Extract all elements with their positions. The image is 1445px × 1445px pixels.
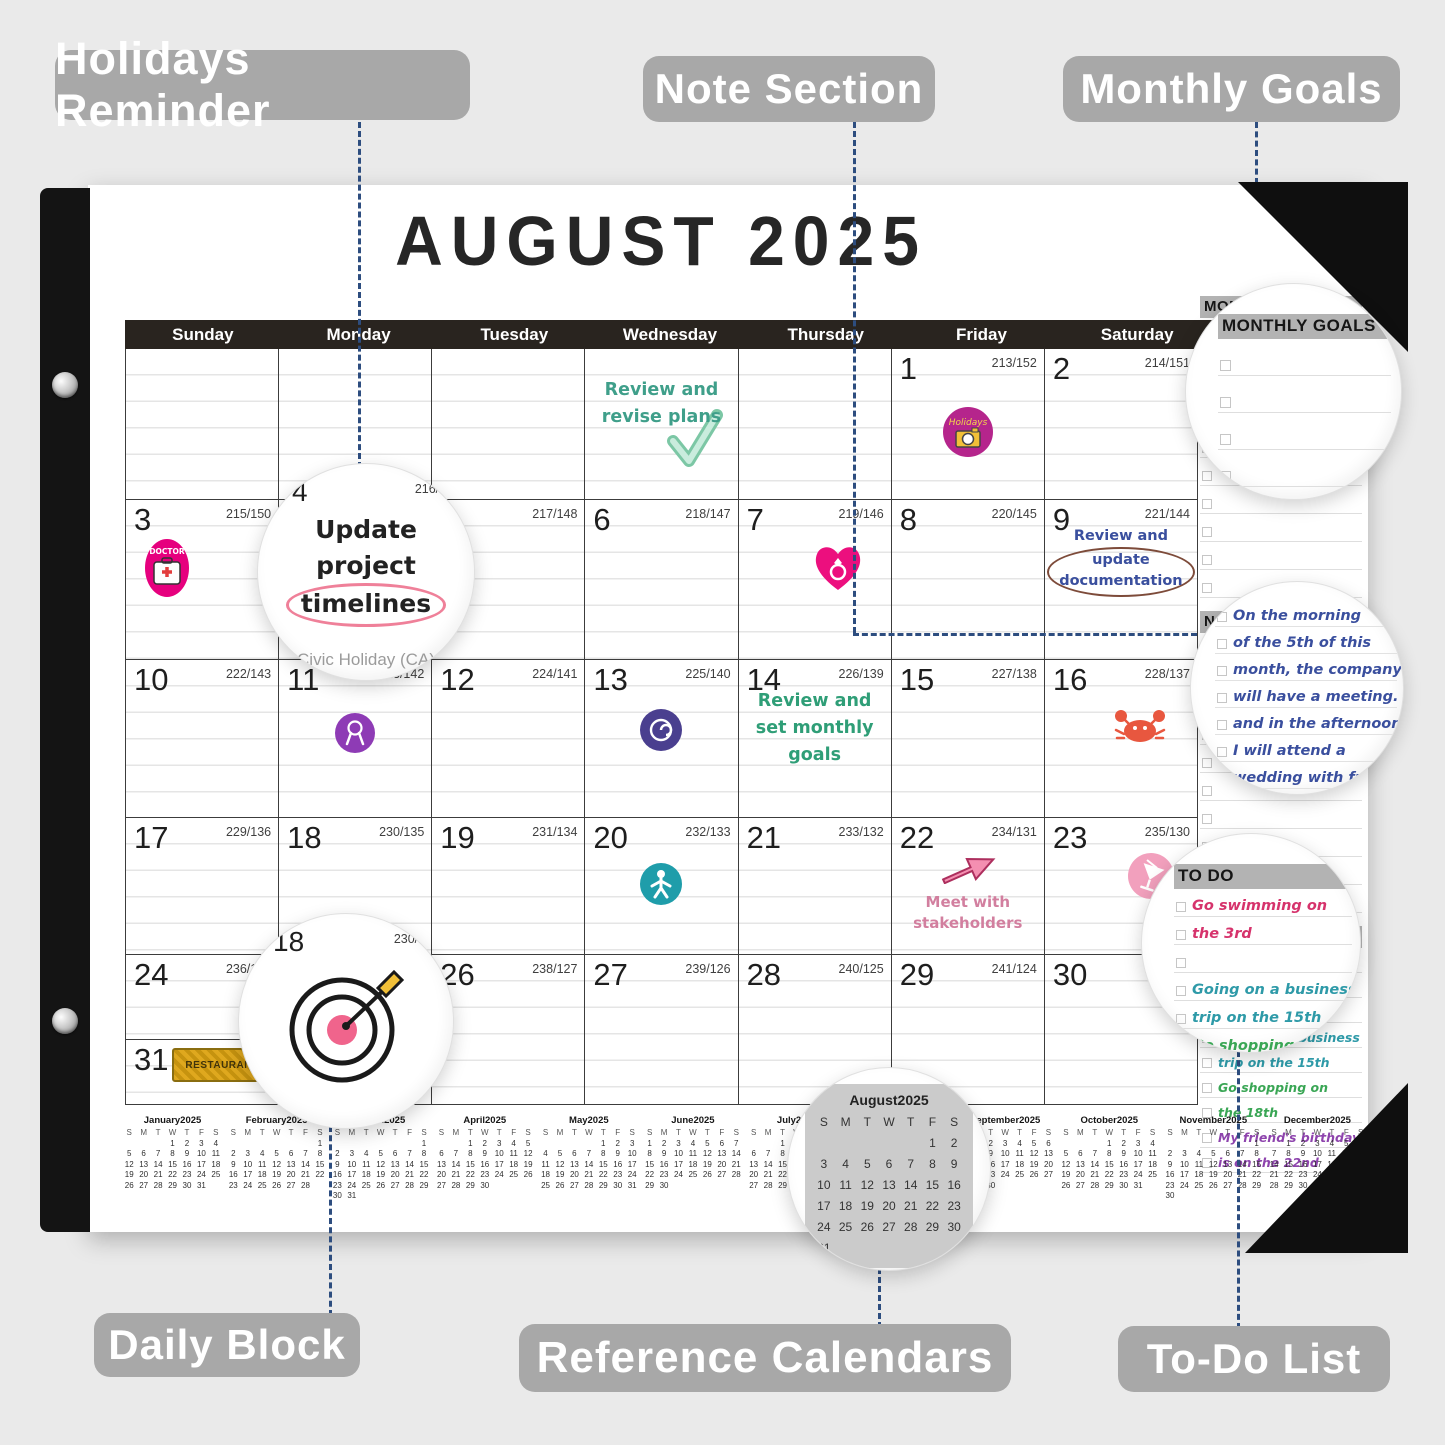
mini-day: 28 [151,1181,165,1192]
mini-day: 8 [1249,1149,1263,1160]
mini-day: 28 [729,1170,743,1181]
day-cell: 12224/141 [432,660,585,818]
todo-item-magnified-text: Go shopping on [1192,1038,1320,1053]
todo-item-magnified-text: trip on the 15th [1192,1010,1321,1028]
mini-dow-label: S [642,1128,656,1139]
mini-day: 7 [1088,1149,1102,1160]
mini-day: 26 [373,1181,387,1192]
mini-day: 19 [1059,1170,1073,1181]
mini-blank [538,1139,552,1150]
mini-dow-label: T [700,1128,714,1139]
mini-month-january2025: January2025SMTWTFS1234567891011121314151… [122,1115,223,1202]
mini-day: 26 [700,1170,714,1181]
mini-day: 10 [625,1149,639,1160]
mini-day: 27 [136,1181,150,1192]
mini-month-title: May2025 [538,1115,639,1126]
mini-day: 19 [269,1170,283,1181]
mini-day: 12 [856,1175,878,1196]
mini-dow-label: T [388,1128,402,1139]
mini-day: 6 [1073,1149,1087,1160]
reference-calendar-magnifier: August2025 SMTWTFS1234567891011121314151… [787,1067,991,1271]
mini-day: 29 [1281,1181,1295,1192]
mini-day: 14 [729,1149,743,1160]
mini-day: 24 [194,1170,208,1181]
mini-day: 20 [1073,1170,1087,1181]
day-number: 31 [134,1042,168,1078]
mini-day: 8 [1102,1149,1116,1160]
mini-day: 4 [1012,1139,1026,1150]
mini-day: 3 [1177,1149,1191,1160]
mini-day: 23 [478,1170,492,1181]
checkbox-icon [1217,639,1227,649]
mini-month-title: April2025 [434,1115,535,1126]
mini-day: 3 [1310,1139,1324,1150]
mini-day: 18 [359,1170,373,1181]
mini-day: 30 [180,1181,194,1192]
mini-dow-label: T [151,1128,165,1139]
mini-dow-label: S [1145,1128,1159,1139]
mini-day: 27 [715,1170,729,1181]
mini-day: 11 [835,1175,857,1196]
day-counter: 227/138 [992,667,1037,681]
mini-blank [359,1139,373,1150]
mini-day: 14 [582,1160,596,1171]
goal-magnified-row [1218,450,1391,487]
day-counter: 238/127 [532,962,577,976]
day-counter: 233/132 [839,825,884,839]
day-number: 1 [900,351,917,387]
day-number: 23 [1053,820,1087,856]
teal-runner-sticker [639,862,683,906]
mini-dow-label: S [625,1128,639,1139]
checkbox-icon [1202,1058,1212,1068]
day-number: 27 [593,957,627,993]
mini-day: 13 [1073,1160,1087,1171]
day-counter: 234/131 [992,825,1037,839]
mini-day: 2 [943,1133,965,1154]
mini-dow-label: S [538,1128,552,1139]
mini-day: 9 [478,1149,492,1160]
mini-day: 23 [657,1170,671,1181]
mini-day: 6 [878,1154,900,1175]
mini-day: 12 [521,1149,535,1160]
todo-item-row: Go shopping on [1200,1073,1362,1098]
todo-item-text: trip on the 15th [1218,1055,1330,1072]
mini-day: 20 [746,1170,760,1181]
note-line-row: month, the company [1215,654,1397,681]
mini-day: 28 [1088,1181,1102,1192]
mini-day: 22 [642,1170,656,1181]
mini-day: 2 [1116,1139,1130,1150]
mini-day: 13 [136,1160,150,1171]
mini-dow-label: T [255,1128,269,1139]
month-title: AUGUST 2025 [125,201,1197,281]
note-line-text: will have a meeting. [1233,689,1399,707]
weekday-header-sunday: Sunday [125,320,281,349]
day-number: 30 [1053,957,1087,993]
mini-blank [1192,1139,1206,1150]
mini-day: 16 [226,1170,240,1181]
day-counter: 218/147 [685,507,730,521]
day-counter: 235/130 [1145,825,1190,839]
holidays-reminder-magnifier: 4 216/149 Updateprojecttimelines Civic H… [257,463,475,681]
mini-dow-label: M [345,1128,359,1139]
mini-day: 21 [729,1160,743,1171]
connector-note-line-vertical [853,122,856,633]
day-number: 3 [134,502,151,538]
day-number: 6 [593,502,610,538]
mini-day: 4 [686,1139,700,1150]
mini-day: 11 [1145,1149,1159,1160]
mini-day: 2 [226,1149,240,1160]
monthly-goals-header-magnified: MONTHLY GOALS [1218,314,1387,339]
mini-day: 28 [761,1181,775,1192]
mini-day: 6 [388,1149,402,1160]
mini-blank [373,1139,387,1150]
note-line-row: and in the afternoon [1215,708,1397,735]
holiday-name-label: Civic Holiday (CA) [258,650,474,670]
mini-blank [553,1139,567,1150]
todo-item-magnified-row: the 3rd [1174,917,1352,945]
mini-day: 7 [402,1149,416,1160]
mini-day: 2 [1296,1139,1310,1150]
mini-day: 18 [209,1160,223,1171]
purple-ribbon-sticker [334,712,376,754]
todo-item-magnified-row: Going on a business [1174,973,1352,1001]
handwritten-note: Review and revise plans [587,377,735,431]
mini-dow-label: F [1027,1128,1041,1139]
mini-day: 25 [1192,1181,1206,1192]
day-cell: 22234/131Meet with stakeholders [892,818,1045,955]
weekday-header-friday: Friday [904,320,1060,349]
mini-day: 1 [1281,1139,1295,1150]
mini-dow-label: M [1073,1128,1087,1139]
mini-day: 15 [1249,1160,1263,1171]
mini-day: 16 [943,1175,965,1196]
mini-day: 27 [746,1181,760,1192]
mini-day: 22 [1102,1170,1116,1181]
mini-dow-label: S [1163,1128,1177,1139]
mini-day: 21 [151,1170,165,1181]
mini-dow-label: S [1059,1128,1073,1139]
day-cell: 3215/150DOCTOR [126,500,279,660]
day-number: 17 [134,820,168,856]
mini-dow-label: W [1206,1128,1220,1139]
mini-day: 11 [538,1160,552,1171]
mini-day: 18 [1145,1160,1159,1171]
mini-day: 23 [1163,1181,1177,1192]
mini-day: 8 [313,1149,327,1160]
mini-day: 24 [241,1181,255,1192]
mini-day: 18 [506,1160,520,1171]
mini-day: 28 [1267,1181,1281,1192]
mini-day: 26 [1027,1170,1041,1181]
day-cell: 26238/127 [432,955,585,1105]
mini-day: 6 [284,1149,298,1160]
checkbox-icon [1202,555,1212,565]
mini-day: 20 [434,1170,448,1181]
mini-day: 3 [625,1139,639,1150]
mini-day: 11 [209,1149,223,1160]
binder-rivet-bottom [52,1008,78,1034]
mini-dow-label: T [492,1128,506,1139]
mini-day: 6 [1041,1139,1055,1150]
mini-day: 21 [298,1170,312,1181]
mini-day: 13 [388,1160,402,1171]
dartboard-doodle [239,964,453,1088]
mini-dow-label: T [900,1112,922,1133]
mini-month-title: October2025 [1059,1115,1160,1126]
mini-day: 27 [434,1181,448,1192]
mini-blank [1163,1139,1177,1150]
mini-day: 18 [255,1170,269,1181]
mini-day: 7 [449,1149,463,1160]
mini-day: 4 [1325,1139,1339,1150]
checkbox-icon [1202,583,1212,593]
mini-day: 1 [463,1139,477,1150]
notes-magnifier: On the morningof the 5th of thismonth, t… [1190,581,1404,795]
connector-daily-block-line [329,1126,332,1316]
note-line-row: On the morning [1215,600,1397,627]
mini-day: 30 [611,1181,625,1192]
mini-blank [1088,1139,1102,1150]
mini-dow-label: W [1102,1128,1116,1139]
mini-day: 13 [567,1160,581,1171]
mini-day: 29 [922,1217,944,1238]
handwritten-note: Meet with stakeholders [894,892,1042,934]
mini-day: 19 [122,1170,136,1181]
day-counter: 225/140 [685,667,730,681]
mini-day: 12 [700,1149,714,1160]
mini-day: 15 [596,1160,610,1171]
mini-day: 2 [330,1149,344,1160]
todo-item-magnified-text: the 3rd [1192,926,1252,944]
note-line-text: and in the afternoon [1233,716,1402,734]
mini-day: 19 [1206,1170,1220,1181]
mini-day: 4 [255,1149,269,1160]
mini-day: 24 [1131,1170,1145,1181]
mini-day: 12 [1206,1160,1220,1171]
mini-day: 16 [611,1160,625,1171]
checkbox-icon [1217,612,1227,622]
day-cell: 6218/147 [585,500,738,660]
day-counter: 229/136 [226,825,271,839]
mini-day: 13 [878,1175,900,1196]
mini-day: 21 [761,1170,775,1181]
mini-day: 5 [553,1149,567,1160]
mini-dow-label: W [1310,1128,1324,1139]
mini-dow-label: T [567,1128,581,1139]
mini-day: 3 [194,1139,208,1150]
mini-day: 1 [1102,1139,1116,1150]
mini-day: 1 [313,1139,327,1150]
mini-dow-label: W [269,1128,283,1139]
mini-day: 19 [856,1196,878,1217]
todo-item-magnified-row: Go shopping on [1174,1029,1352,1053]
mini-day: 19 [700,1160,714,1171]
checkbox-icon [1202,499,1212,509]
august-mini-title: August2025 [805,1092,973,1108]
day-cell: 7219/146 [739,500,892,660]
magnified-day-counter: 216/149 [415,482,460,496]
magnified-day-number: 18 [273,926,304,958]
mini-day: 18 [538,1170,552,1181]
weekday-header-tuesday: Tuesday [436,320,592,349]
day-cell: Review and revise plans [585,349,738,500]
mini-day: 11 [506,1149,520,1160]
mini-dow-label: M [449,1128,463,1139]
mini-day: 5 [1027,1139,1041,1150]
mini-month-title: January2025 [122,1115,223,1126]
goal-magnified-row [1218,339,1391,376]
svg-text:Holidays: Holidays [949,418,988,428]
mini-month-grid: SMTWTFS123456789101112131415161718192021… [1163,1128,1264,1202]
mini-day: 8 [165,1149,179,1160]
mini-dow-label: M [835,1112,857,1133]
mini-day: 22 [1281,1170,1295,1181]
mini-day: 10 [345,1160,359,1171]
reference-calendars-strip: January2025SMTWTFS1234567891011121314151… [122,1115,1368,1202]
checkbox-icon [1220,471,1231,482]
mini-day: 16 [180,1160,194,1171]
pink-arrow-sticker [935,844,1001,884]
mini-month-grid: SMTWTFS123456789101112131415161718192021… [1059,1128,1160,1191]
day-counter: 219/146 [839,507,884,521]
mini-day: 23 [1296,1170,1310,1181]
goal-row [1200,542,1362,570]
mini-day: 7 [900,1154,922,1175]
mini-blank [136,1139,150,1150]
mini-blank [284,1139,298,1150]
mini-month-title: December2025 [1267,1115,1368,1126]
day-number: 13 [593,662,627,698]
checkbox-icon [1202,814,1212,824]
mini-day: 6 [715,1139,729,1150]
mini-day: 20 [1221,1170,1235,1181]
mini-day: 17 [671,1160,685,1171]
connector-monthly-goals-line [1255,122,1258,184]
mini-dow-label: F [1339,1128,1353,1139]
mini-day: 1 [417,1139,431,1150]
checkbox-icon [1176,930,1186,940]
mini-day: 29 [417,1181,431,1192]
mini-day: 17 [492,1160,506,1171]
mini-day: 24 [625,1170,639,1181]
mini-day: 14 [151,1160,165,1171]
mini-dow-label: T [1088,1128,1102,1139]
mini-dow-label: W [686,1128,700,1139]
mini-day: 28 [582,1181,596,1192]
mini-month-grid: SMTWTFS123456789101112131415161718192021… [330,1128,431,1202]
mini-dow-label: S [434,1128,448,1139]
mini-day: 16 [1296,1160,1310,1171]
mini-dow-label: T [856,1112,878,1133]
day-counter: 217/148 [532,507,577,521]
mini-dow-label: S [226,1128,240,1139]
mini-dow-label: M [1177,1128,1191,1139]
mini-day: 15 [417,1160,431,1171]
binder-rivet-top [52,372,78,398]
day-cell: 16228/137 [1045,660,1198,818]
mini-day: 12 [1027,1149,1041,1160]
mini-day: 27 [1221,1181,1235,1192]
mini-day: 9 [943,1154,965,1175]
checkbox-icon [1176,1014,1186,1024]
todo-item-magnified-text: Going on a business [1192,982,1356,1000]
mini-day: 4 [835,1154,857,1175]
mini-day: 8 [642,1149,656,1160]
todo-item-text: Go shopping on [1218,1080,1328,1097]
day-counter: 226/139 [839,667,884,681]
day-cell: 21233/132 [739,818,892,955]
note-line-row: of the 5th of this [1215,627,1397,654]
mini-day: 16 [1163,1170,1177,1181]
magnified-day-number: 4 [292,476,308,508]
mini-day: 26 [1059,1181,1073,1192]
mini-blank [1221,1139,1235,1150]
mini-month-grid: SMTWTFS123456789101112131415161718192021… [538,1128,639,1191]
mini-day: 19 [521,1160,535,1171]
mini-day: 11 [359,1160,373,1171]
mini-day: 29 [642,1181,656,1192]
mini-day: 1 [642,1139,656,1150]
mini-day: 30 [478,1181,492,1192]
checkbox-icon [1220,360,1231,371]
mini-day: 21 [1267,1170,1281,1181]
checkbox-icon [1176,1042,1186,1052]
mini-day: 26 [1206,1181,1220,1192]
mini-day: 13 [715,1149,729,1160]
day-cell: 15227/138 [892,660,1045,818]
day-number: 24 [134,957,168,993]
mini-dow-label: S [1267,1128,1281,1139]
goal-row [1200,514,1362,542]
mini-day: 17 [813,1196,835,1217]
mini-day: 15 [922,1175,944,1196]
mini-day: 12 [1059,1160,1073,1171]
weekday-header-saturday: Saturday [1059,320,1215,349]
mini-day: 4 [506,1139,520,1150]
mini-dow-label: T [359,1128,373,1139]
mini-day: 12 [373,1160,387,1171]
checkbox-icon [1217,693,1227,703]
mini-dow-label: W [165,1128,179,1139]
day-counter: 224/141 [532,667,577,681]
mini-day: 26 [553,1181,567,1192]
callout-daily-block: Daily Block [94,1313,360,1377]
mini-dow-label: F [506,1128,520,1139]
mini-day: 25 [1145,1170,1159,1181]
mini-blank [449,1139,463,1150]
mini-day: 2 [611,1139,625,1150]
mini-day: 4 [209,1139,223,1150]
mini-day: 30 [657,1181,671,1192]
doctor-sticker: DOCTOR [144,538,190,598]
mini-dow-label: T [596,1128,610,1139]
mini-day: 25 [538,1181,552,1192]
mini-day: 16 [478,1160,492,1171]
mini-dow-label: S [313,1128,327,1139]
day-cell: 20232/133 [585,818,738,955]
mini-day: 27 [1041,1170,1055,1181]
mini-day: 2 [478,1139,492,1150]
mini-day: 24 [492,1170,506,1181]
mini-day: 30 [330,1191,344,1202]
mini-day: 25 [686,1170,700,1181]
mini-day: 17 [1310,1160,1324,1171]
checkbox-icon [1217,747,1227,757]
mini-day: 9 [611,1149,625,1160]
